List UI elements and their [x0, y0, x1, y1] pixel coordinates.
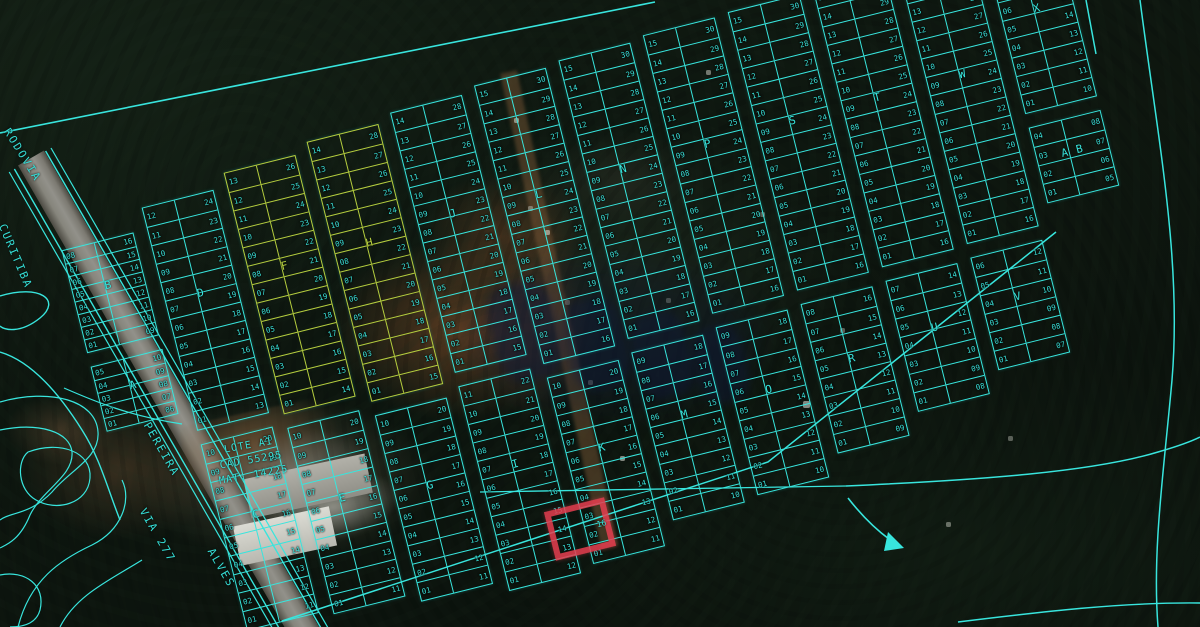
block-A[interactable]: 05100409030802070106A — [91, 349, 179, 432]
block-U[interactable]: 0714061305120411031002090108U — [885, 263, 989, 412]
map-viewport[interactable]: 08160715061405130412031102100109B0510040… — [0, 0, 1200, 627]
contour-line — [60, 560, 142, 627]
contour-line — [0, 427, 72, 548]
junction-loop — [0, 292, 49, 330]
block-V[interactable]: 061205110410030902080107V — [970, 240, 1070, 370]
contour-line — [20, 447, 90, 505]
block-AB[interactable]: 0408030702060105A B — [1029, 110, 1120, 204]
highlighted-lot-number: 16 — [596, 518, 608, 529]
